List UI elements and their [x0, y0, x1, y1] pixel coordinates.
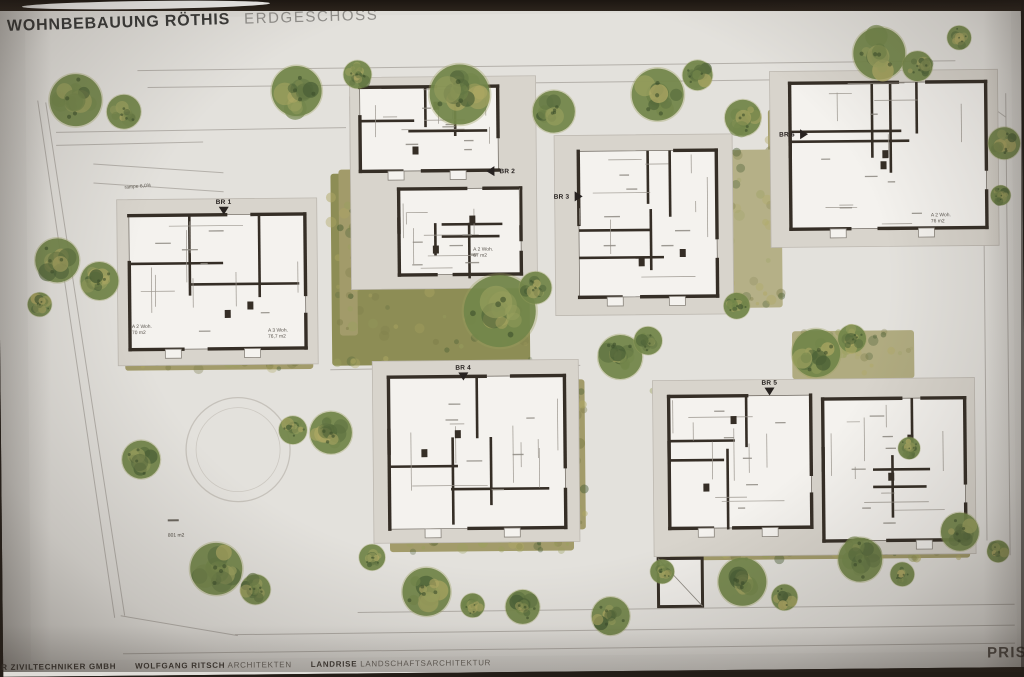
tree [27, 292, 53, 318]
tree [723, 292, 751, 320]
tree [278, 415, 308, 445]
building-floorplan [388, 375, 566, 538]
building-marker-br6: BR 6 [776, 129, 808, 139]
unit-label: A 2 Woh.76 m2 [931, 212, 968, 236]
engineer-credit: ER ZIVILTECHNIKER GMBH [0, 662, 116, 672]
tree [889, 561, 915, 587]
entry-arrow-down-icon [458, 372, 468, 380]
tree [649, 559, 675, 585]
unit-label: A 2 Woh.67 m2 [473, 246, 510, 270]
tree [428, 62, 492, 126]
tree [48, 72, 104, 128]
unit-label: A 3 Woh.76,7 m2 [268, 327, 305, 351]
building-marker-br1: BR 1 [213, 197, 235, 215]
tree [633, 326, 663, 356]
tree [940, 511, 981, 552]
ramp-label: rampe 6,0% [124, 176, 174, 198]
tree [717, 556, 768, 607]
tree [504, 589, 540, 625]
building-marker-br2: BR 2 [486, 166, 518, 176]
sheet-name: ERDGESCHOSS [244, 6, 379, 27]
entry-arrow-down-icon [219, 207, 229, 215]
tree [358, 543, 386, 571]
entry-arrow-left-icon [486, 166, 494, 176]
tree [518, 271, 552, 305]
tree [681, 59, 713, 91]
building-marker-br4: BR 4 [452, 362, 474, 380]
tree [590, 596, 631, 637]
building-marker-br5: BR 5 [758, 377, 780, 395]
tree [79, 261, 120, 302]
landscape-role: LANDSCHAFTSARCHITEKTUR [360, 658, 491, 668]
architect-name: WOLFGANG RITSCH [135, 661, 225, 671]
tree [34, 237, 81, 284]
entry-arrow-right-icon [800, 129, 808, 139]
site-area-label: 801 m2 [168, 509, 198, 545]
tree [986, 540, 1010, 564]
tree [771, 583, 799, 611]
tree [946, 25, 972, 51]
tree [630, 67, 686, 123]
tree [106, 94, 142, 130]
unit-label: A 2 Woh.70 m2 [132, 323, 169, 347]
illegible-word [168, 519, 179, 521]
tree [460, 593, 486, 619]
building-marker-label: BR 3 [554, 193, 570, 200]
landscape-name: LANDRISE [311, 660, 358, 669]
tree [987, 126, 1021, 160]
tree [790, 327, 841, 378]
building-marker-label: BR 5 [761, 379, 777, 386]
brand-logo-partial: PRISM [987, 644, 1024, 662]
building-floorplan [669, 395, 812, 537]
building-marker-label: BR 1 [216, 198, 232, 205]
tree [308, 410, 353, 455]
building-marker-label: BR 6 [779, 131, 795, 138]
tree [188, 541, 244, 597]
entry-arrow-down-icon [764, 387, 774, 395]
building-marker-br3: BR 3 [551, 191, 583, 201]
tree [990, 185, 1011, 206]
building-floorplan [578, 150, 717, 306]
building-marker-label: BR 4 [455, 364, 471, 371]
tree [897, 436, 921, 460]
architectural-site-plan: WOHNBEBAUUNG RÖTHISERDGESCHOSS BR 1 BR 2… [0, 0, 1024, 677]
entry-arrow-right-icon [574, 191, 582, 201]
tree [401, 566, 452, 617]
tree [531, 89, 576, 134]
building-marker-label: BR 2 [499, 167, 515, 174]
tree [121, 439, 162, 480]
architect-role: ARCHITEKTEN [228, 660, 292, 670]
tree [343, 59, 373, 89]
